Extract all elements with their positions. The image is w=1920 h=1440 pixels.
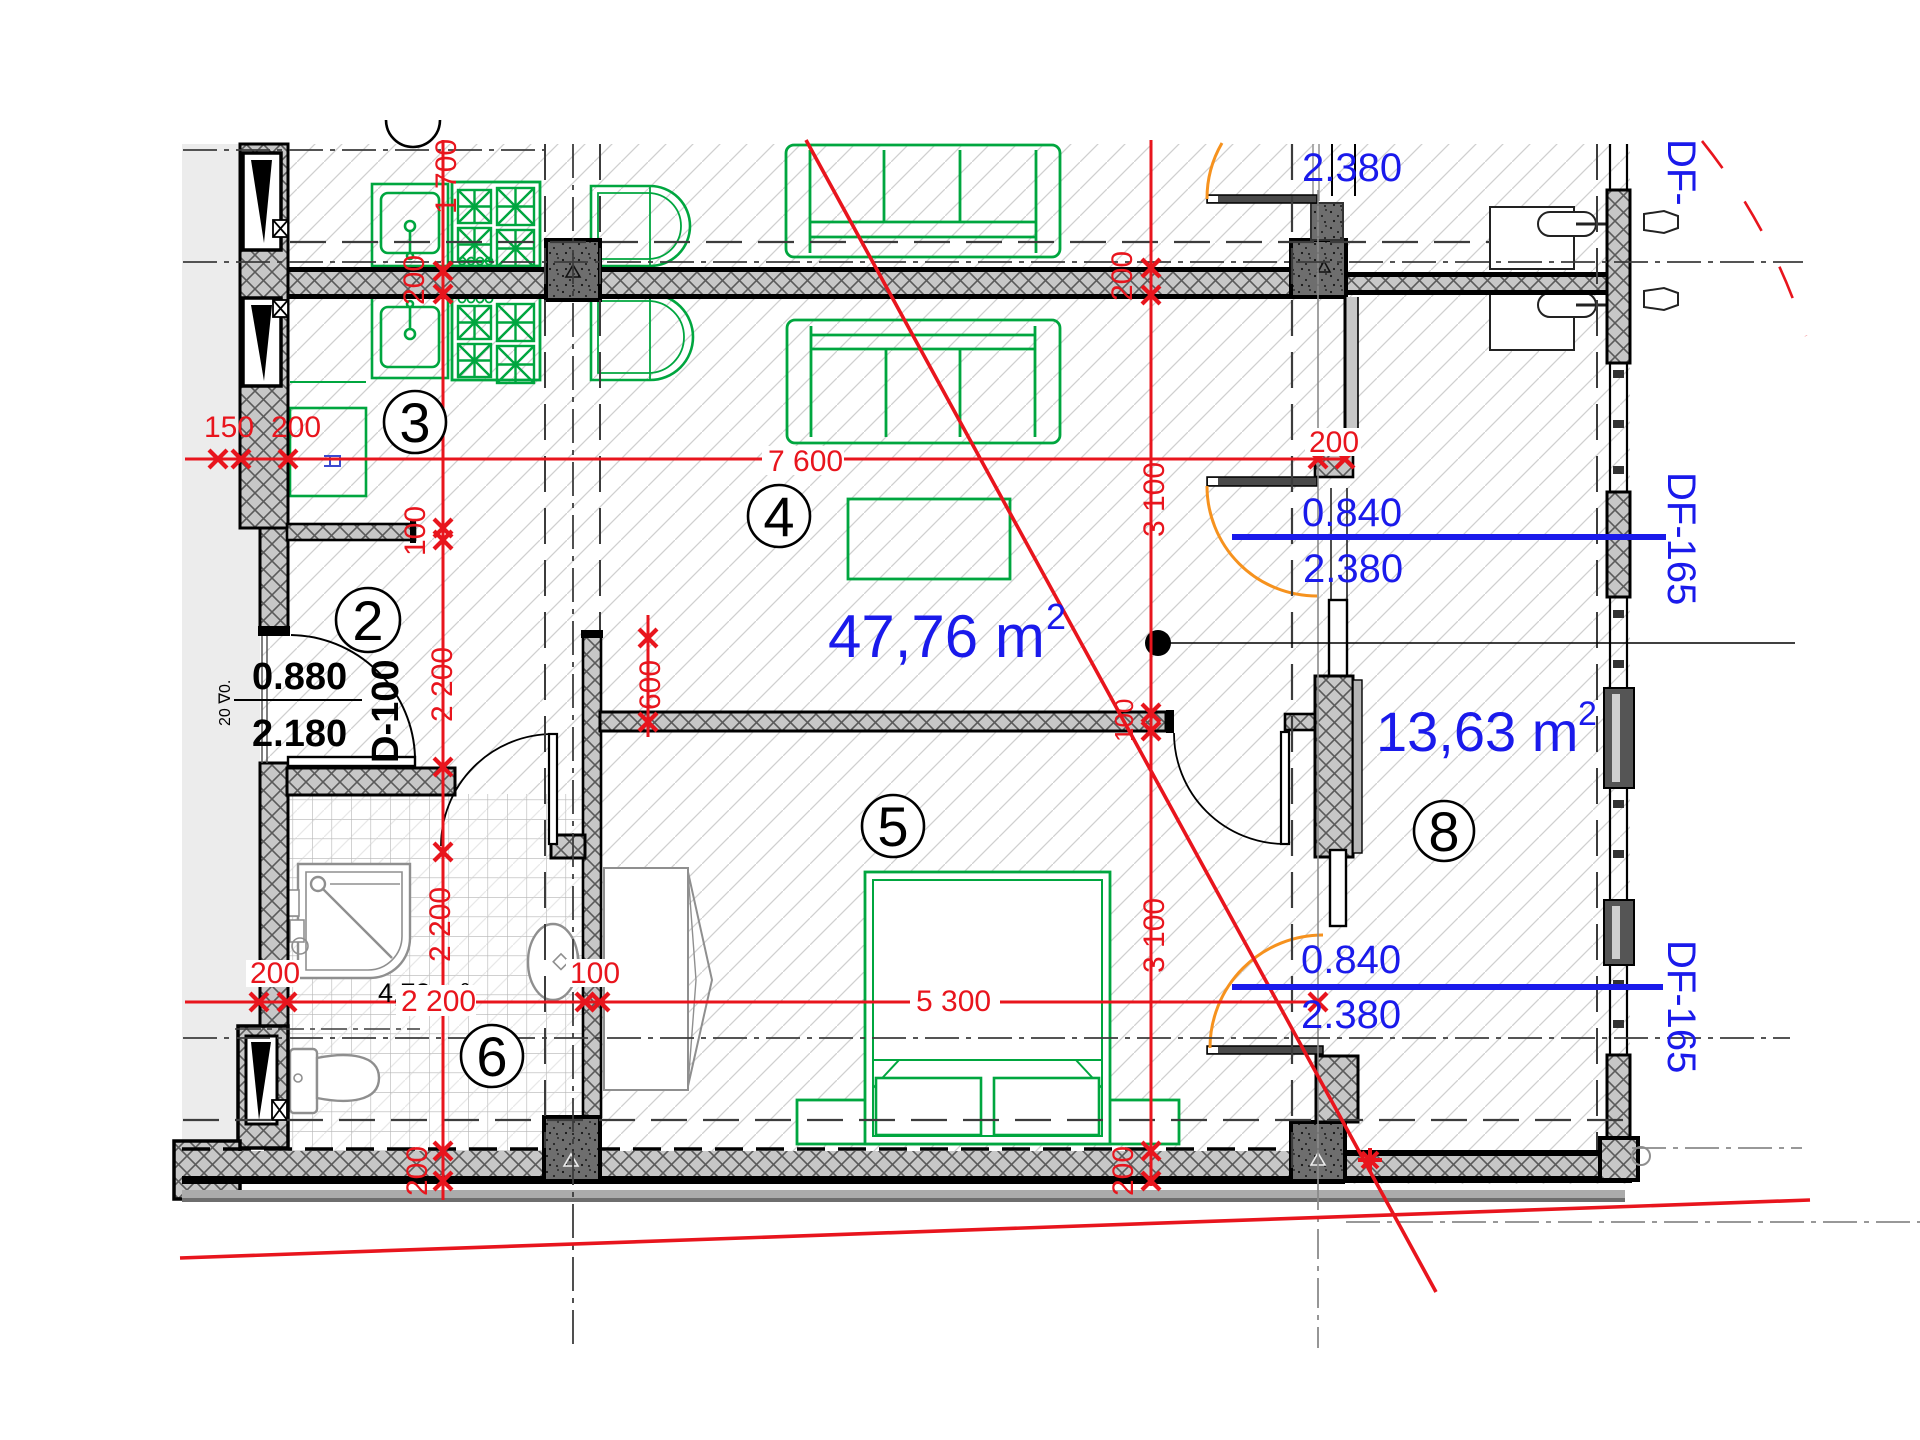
svg-text:DF-165: DF-165	[1659, 472, 1703, 605]
svg-text:100: 100	[570, 957, 620, 990]
svg-text:47,76 m: 47,76 m	[828, 603, 1045, 670]
svg-text:5: 5	[877, 795, 908, 858]
svg-text:2: 2	[1578, 695, 1597, 733]
svg-text:2: 2	[1046, 596, 1066, 637]
svg-text:150: 150	[204, 411, 254, 444]
svg-text:3: 3	[399, 391, 430, 454]
svg-text:200: 200	[398, 255, 431, 305]
svg-text:DF-165: DF-165	[1659, 940, 1703, 1073]
svg-text:100: 100	[399, 506, 432, 556]
svg-text:2: 2	[352, 589, 383, 652]
svg-text:DF-: DF-	[1659, 139, 1703, 206]
svg-text:2.180: 2.180	[252, 713, 347, 755]
svg-text:7 600: 7 600	[768, 445, 843, 478]
svg-text:2 200: 2 200	[424, 887, 457, 962]
svg-text:8: 8	[1428, 800, 1459, 863]
svg-text:600: 600	[634, 660, 667, 710]
svg-text:4: 4	[763, 485, 794, 548]
svg-text:2 200: 2 200	[401, 985, 476, 1018]
svg-text:2.380: 2.380	[1301, 993, 1401, 1037]
svg-text:200: 200	[1107, 1146, 1140, 1196]
svg-text:200: 200	[250, 957, 300, 990]
svg-text:1 700: 1 700	[430, 139, 463, 214]
svg-text:3 100: 3 100	[1138, 898, 1171, 973]
svg-text:2 200: 2 200	[426, 647, 459, 722]
svg-text:20 ∇0.: 20 ∇0.	[217, 680, 234, 726]
svg-text:0.880: 0.880	[252, 656, 347, 698]
svg-text:3 100: 3 100	[1138, 462, 1171, 537]
svg-text:200: 200	[1106, 251, 1139, 301]
svg-text:13,63 m: 13,63 m	[1376, 700, 1578, 763]
svg-text:5 300: 5 300	[916, 985, 991, 1018]
svg-text:200: 200	[1309, 426, 1359, 459]
svg-text:200: 200	[271, 411, 321, 444]
svg-text:D-100: D-100	[365, 660, 407, 764]
svg-text:100: 100	[1109, 699, 1139, 742]
svg-text:6: 6	[476, 1025, 507, 1088]
svg-text:2.380: 2.380	[1303, 547, 1403, 591]
svg-text:0.840: 0.840	[1302, 491, 1402, 535]
svg-text:0.840: 0.840	[1301, 938, 1401, 982]
svg-text:200: 200	[401, 1146, 434, 1196]
svg-text:2.380: 2.380	[1302, 146, 1402, 190]
